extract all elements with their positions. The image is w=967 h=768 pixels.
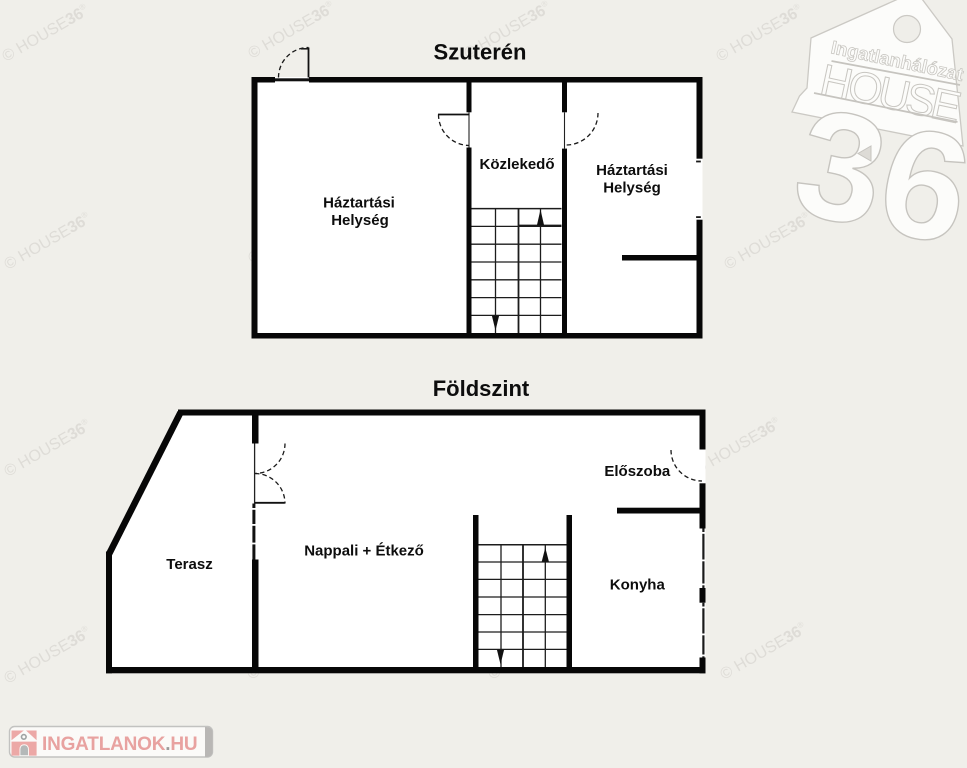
svg-text:INGATLANOK.HU: INGATLANOK.HU xyxy=(42,734,197,755)
svg-text:Helység: Helység xyxy=(603,180,661,197)
svg-text:Földszint: Földszint xyxy=(433,376,530,401)
svg-text:Nappali + Étkező: Nappali + Étkező xyxy=(304,543,424,560)
svg-text:Előszoba: Előszoba xyxy=(604,463,671,480)
svg-text:Közlekedő: Közlekedő xyxy=(479,156,554,173)
svg-text:Szuterén: Szuterén xyxy=(434,40,527,65)
svg-text:Konyha: Konyha xyxy=(610,577,666,594)
svg-text:Helység: Helység xyxy=(331,212,389,229)
svg-text:Háztartási: Háztartási xyxy=(323,195,395,212)
svg-text:Háztartási: Háztartási xyxy=(596,162,668,179)
svg-text:Terasz: Terasz xyxy=(166,556,212,573)
